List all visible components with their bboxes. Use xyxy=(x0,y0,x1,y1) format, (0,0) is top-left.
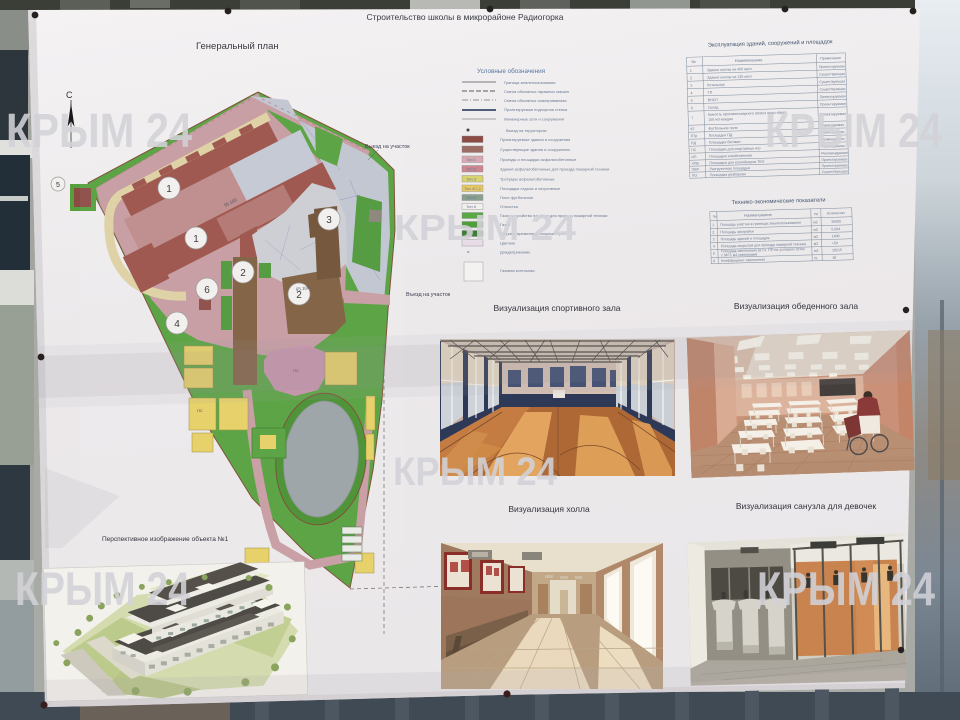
svg-text:Тип 5: Тип 5 xyxy=(466,195,477,200)
svg-text:Тип 1: Тип 1 xyxy=(466,157,477,162)
svg-text:Тротуары асфальтобетонные: Тротуары асфальтобетонные xyxy=(500,177,555,182)
svg-text:Котельная: Котельная xyxy=(707,83,725,87)
svg-text:ТП: ТП xyxy=(707,91,712,95)
svg-text:Проектируемая подпорная стенка: Проектируемая подпорная стенка xyxy=(504,107,568,112)
svg-text:Дождеприемник: Дождеприемник xyxy=(500,250,530,255)
svg-text:КРЫМ 24: КРЫМ 24 xyxy=(15,562,190,615)
svg-text:Тип 4/7,2: Тип 4/7,2 xyxy=(464,186,481,191)
svg-text:Здания асфальтобетонные для пр: Здания асфальтобетонные для проезда пожа… xyxy=(500,167,609,172)
svg-text:18215: 18215 xyxy=(832,248,842,252)
svg-text:КРЫМ 24: КРЫМ 24 xyxy=(394,207,576,248)
svg-text:2: 2 xyxy=(712,231,714,235)
svg-text:5: 5 xyxy=(713,252,715,256)
svg-text:Генеральный план: Генеральный план xyxy=(196,41,279,52)
svg-text:4: 4 xyxy=(713,245,715,249)
svg-text:ПД: ПД xyxy=(691,141,697,145)
svg-text:3: 3 xyxy=(713,238,715,242)
svg-text:КРЫМ 24: КРЫМ 24 xyxy=(757,562,935,615)
svg-text:Площадка ПД: Площадка ПД xyxy=(709,133,733,138)
svg-text:КРЫМ 24: КРЫМ 24 xyxy=(765,105,942,158)
svg-text:Существующие здания и сооружен: Существующие здания и сооружения xyxy=(500,147,570,152)
svg-text:Визуализация санузла для девоч: Визуализация санузла для девочек xyxy=(736,501,876,511)
svg-text:1400: 1400 xyxy=(831,234,839,238)
svg-text:ед: ед xyxy=(814,212,818,216)
svg-text:5: 5 xyxy=(56,182,60,189)
svg-text:Инженерные сети и сооружения: Инженерные сети и сооружения xyxy=(504,117,564,122)
svg-text:Наименование: Наименование xyxy=(744,212,773,218)
svg-text:Смена объемных осматриваемая: Смена объемных осматриваемая xyxy=(504,98,567,103)
svg-text:Выезд на территорию: Выезд на территорию xyxy=(506,128,547,133)
svg-text:6: 6 xyxy=(691,106,693,110)
svg-text:Площадки отдыха и спортивные: Площадки отдыха и спортивные xyxy=(500,186,561,191)
svg-text:150 м3 каждая: 150 м3 каждая xyxy=(708,117,733,122)
svg-text:КРЫМ 24: КРЫМ 24 xyxy=(393,450,558,494)
svg-text:Склад: Склад xyxy=(708,105,719,109)
svg-text:35000: 35000 xyxy=(831,220,841,224)
svg-text:ПО: ПО xyxy=(692,174,698,178)
svg-text:Существующая: Существующая xyxy=(819,87,845,92)
svg-text:Строительство школы в микрорай: Строительство школы в микрорайоне Радиог… xyxy=(366,12,563,22)
svg-text:Газовая котельная: Газовая котельная xyxy=(500,268,535,273)
svg-text:Тип 3: Тип 3 xyxy=(466,177,477,182)
svg-text:Граница землепользования: Граница землепользования xyxy=(504,80,555,85)
svg-text:1: 1 xyxy=(712,223,714,227)
svg-text:18: 18 xyxy=(832,256,836,260)
svg-text:Условные обозначения: Условные обозначения xyxy=(477,67,545,75)
svg-text:м2: м2 xyxy=(814,242,819,246)
svg-text:Перспективное изображение объе: Перспективное изображение объекта №1 xyxy=(102,535,229,543)
svg-text:Проектируемая: Проектируемая xyxy=(821,157,847,162)
svg-text:2: 2 xyxy=(690,76,692,80)
svg-text:С: С xyxy=(66,90,73,100)
svg-text:Проектируемые здания и сооруже: Проектируемые здания и сооружения xyxy=(500,137,570,142)
svg-text:Проектируемая: Проектируемая xyxy=(822,163,848,168)
svg-text:Поле футбольное: Поле футбольное xyxy=(500,195,534,200)
svg-text:1: 1 xyxy=(690,69,692,73)
svg-text:Въезд на участок: Въезд на участок xyxy=(406,292,451,298)
svg-text:Тип 2: Тип 2 xyxy=(466,167,477,172)
svg-text:№: № xyxy=(691,59,695,64)
svg-text:4: 4 xyxy=(690,91,692,95)
svg-text:Наименование: Наименование xyxy=(735,57,764,63)
svg-text:м2: м2 xyxy=(813,220,818,224)
svg-text:+50: +50 xyxy=(832,241,838,245)
svg-text:Проектируемая: Проектируемая xyxy=(819,64,845,69)
svg-text:Визуализация обеденного зала: Визуализация обеденного зала xyxy=(734,301,858,311)
svg-text:ПТр: ПТр xyxy=(691,134,698,138)
svg-text:м2: м2 xyxy=(813,228,818,232)
svg-text:Футбольное поле: Футбольное поле xyxy=(708,126,737,131)
svg-text:м2: м2 xyxy=(814,249,819,253)
svg-text:3: 3 xyxy=(690,84,692,88)
svg-text:7: 7 xyxy=(691,116,693,120)
svg-text:Проектируемая: Проектируемая xyxy=(820,94,846,99)
svg-text:Визуализация спортивного зала: Визуализация спортивного зала xyxy=(493,303,620,313)
svg-text:Смена объемных гаражных машин: Смена объемных гаражных машин xyxy=(504,89,569,94)
svg-text:5,094: 5,094 xyxy=(831,227,840,231)
svg-text:Проезды и площадки асфальтобет: Проезды и площадки асфальтобетонные xyxy=(500,157,577,162)
svg-text:Существующая: Существующая xyxy=(819,79,845,84)
svg-text:Количество: Количество xyxy=(827,211,845,216)
svg-text:ХПВ: ХПВ xyxy=(691,161,699,165)
svg-text:Существующая: Существующая xyxy=(822,169,848,174)
svg-text:ПС: ПС xyxy=(691,148,697,152)
svg-text:Примечание: Примечание xyxy=(820,56,841,61)
svg-text:КРЫМ 24: КРЫМ 24 xyxy=(6,105,192,158)
svg-text:5: 5 xyxy=(691,99,693,103)
svg-text:м2: м2 xyxy=(814,235,819,239)
svg-text:ИП: ИП xyxy=(691,155,697,159)
svg-text:6: 6 xyxy=(713,259,715,263)
svg-text:ВНСП: ВНСП xyxy=(708,98,719,102)
svg-text:Существующая: Существующая xyxy=(819,72,845,77)
svg-text:№: № xyxy=(713,215,717,219)
svg-text:Визуализация холла: Визуализация холла xyxy=(508,504,590,514)
svg-text:ПВР: ПВР xyxy=(692,167,700,171)
